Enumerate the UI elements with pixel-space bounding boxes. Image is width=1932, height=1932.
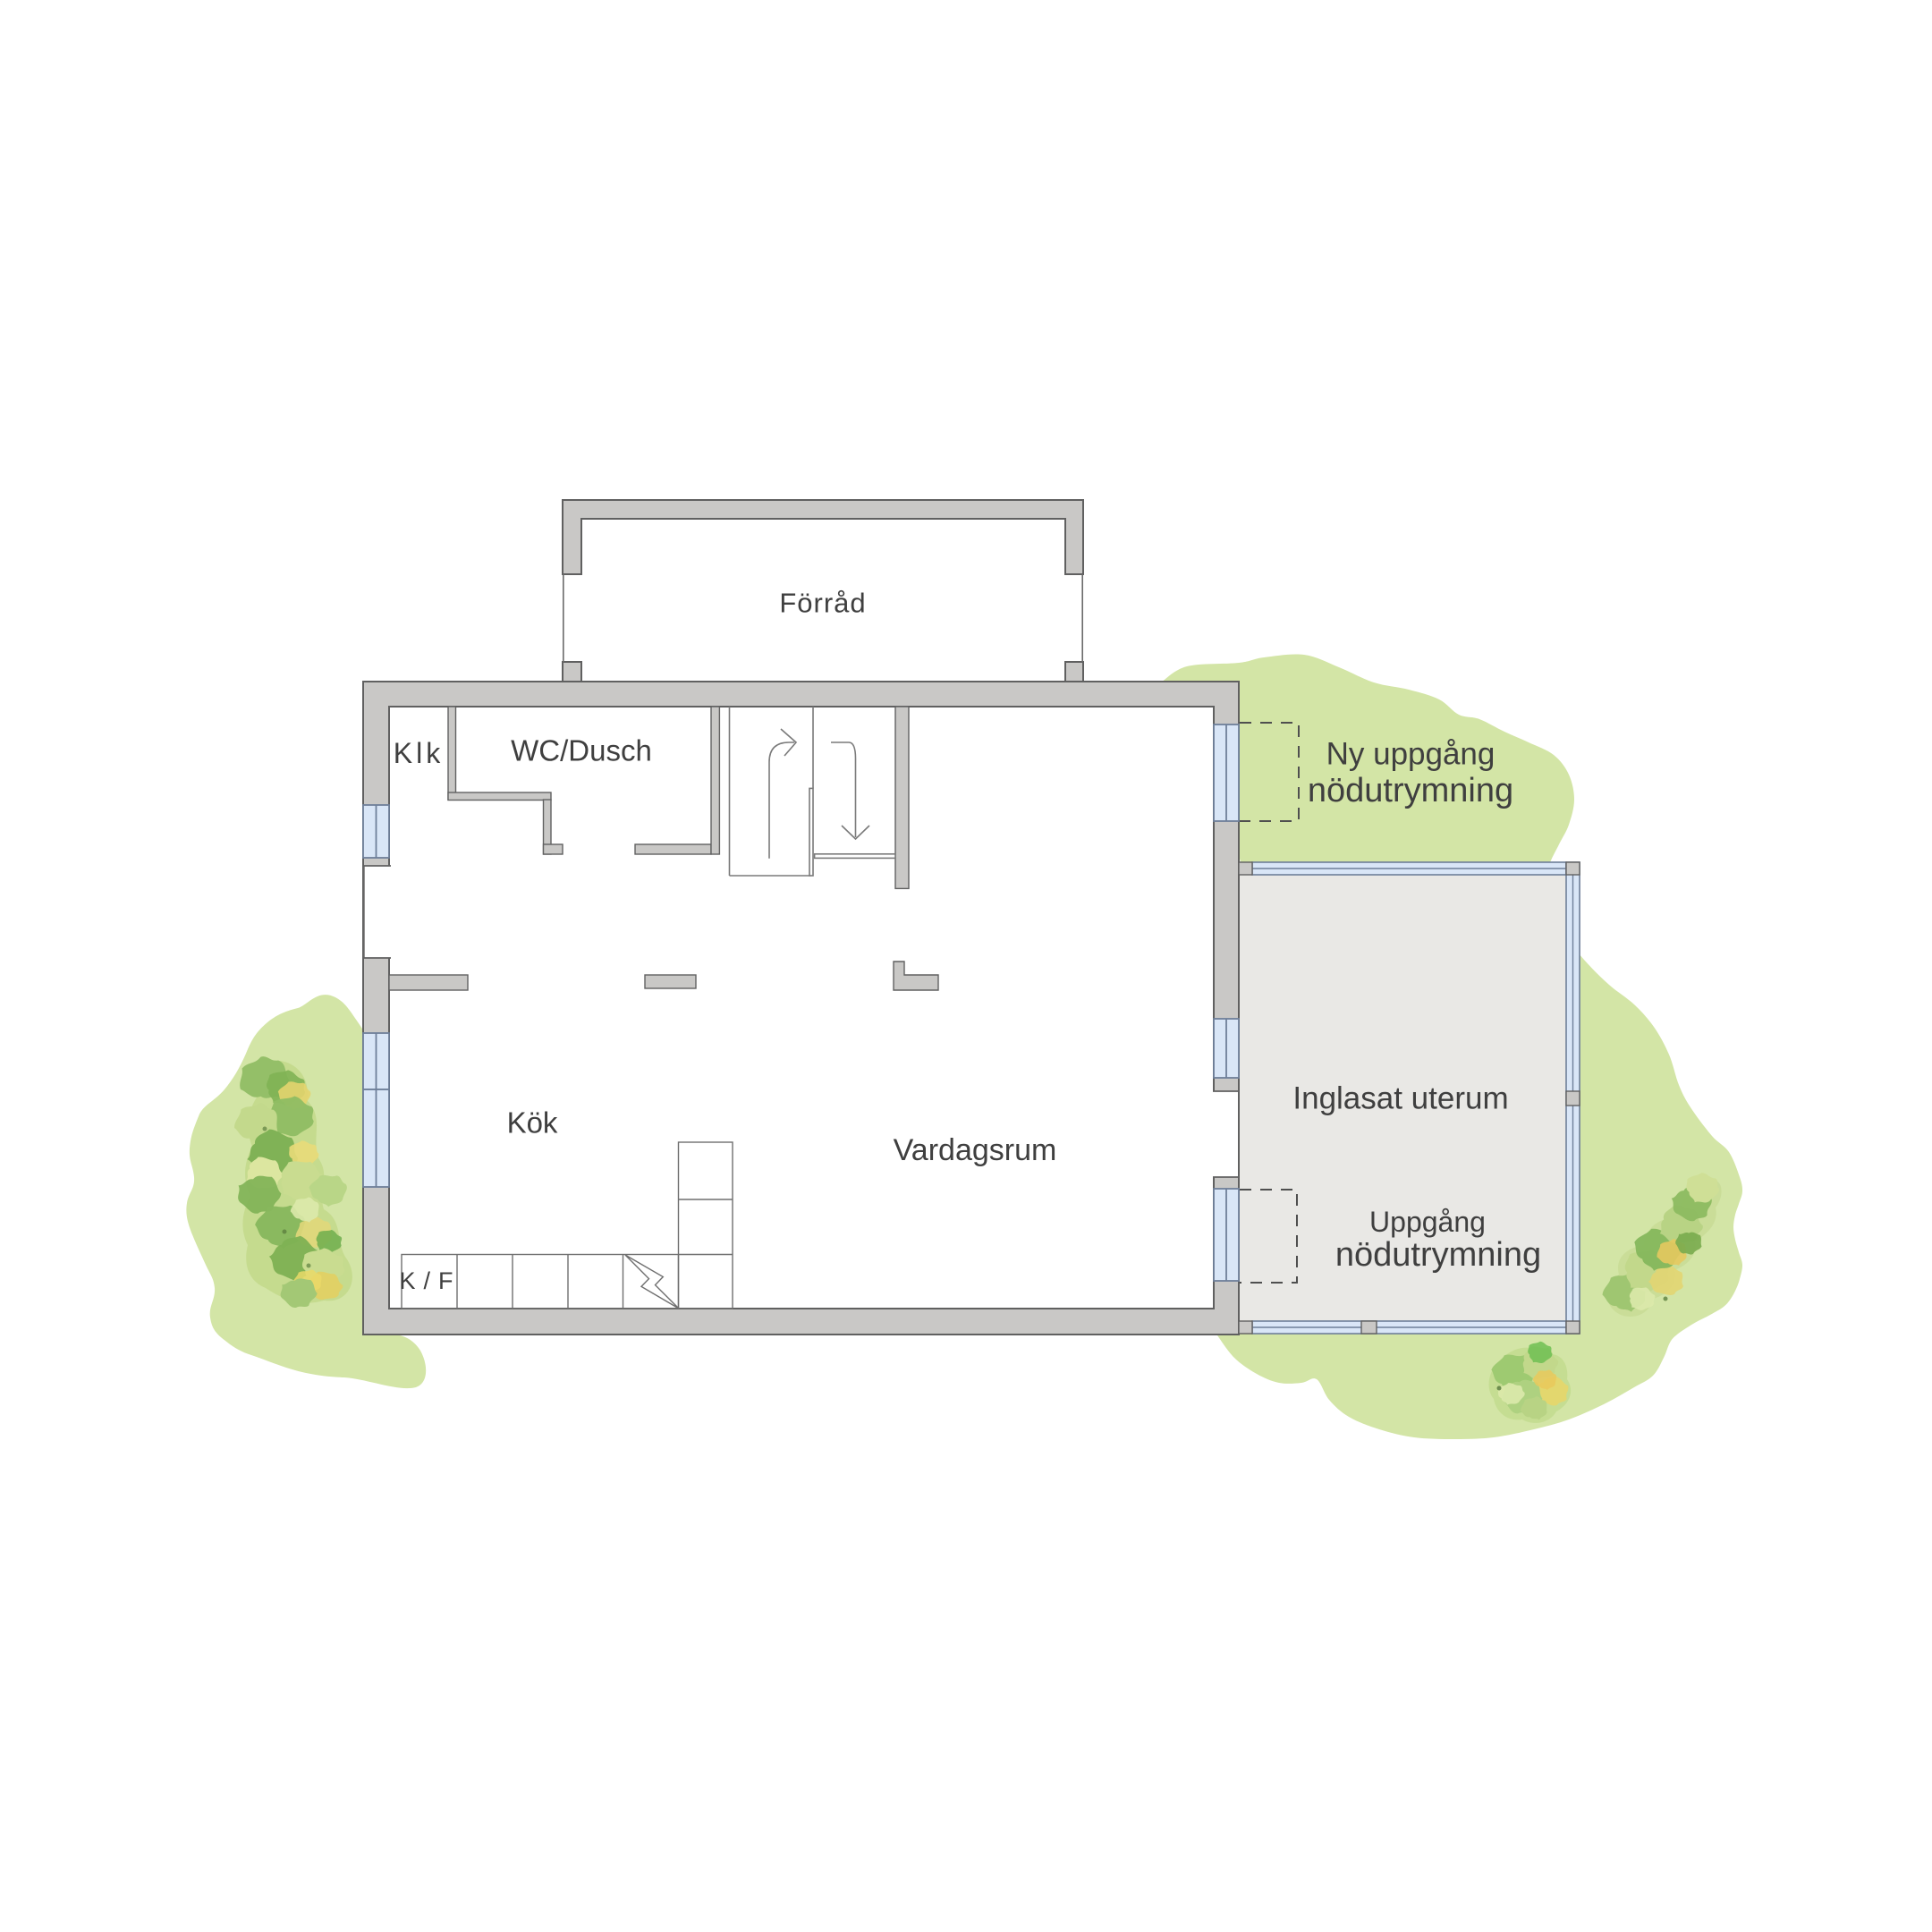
svg-text:K/F: K/F bbox=[399, 1267, 461, 1294]
svg-text:nödutrymning: nödutrymning bbox=[1335, 1236, 1541, 1274]
svg-text:Inglasat uterum: Inglasat uterum bbox=[1292, 1081, 1508, 1116]
svg-text:Uppgång: Uppgång bbox=[1369, 1206, 1486, 1238]
svg-text:nödutrymning: nödutrymning bbox=[1308, 772, 1513, 809]
svg-text:Förråd: Förråd bbox=[779, 588, 866, 619]
svg-text:Vardagsrum: Vardagsrum bbox=[894, 1133, 1057, 1167]
svg-text:WC/Dusch: WC/Dusch bbox=[511, 734, 652, 767]
svg-text:Ny uppgång: Ny uppgång bbox=[1326, 737, 1496, 772]
svg-text:Klk: Klk bbox=[394, 737, 444, 769]
svg-text:Kök: Kök bbox=[507, 1106, 558, 1140]
